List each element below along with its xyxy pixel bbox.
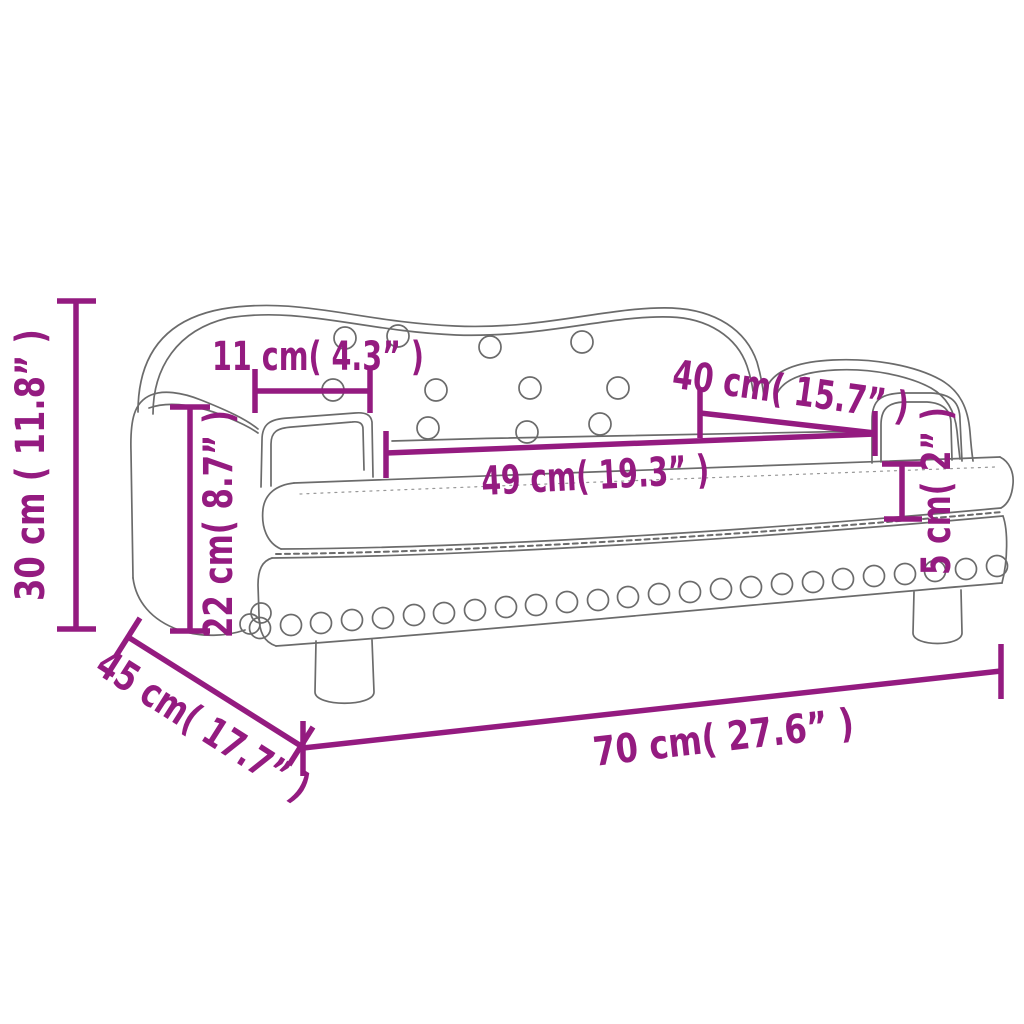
stud	[373, 608, 394, 629]
dimension-label: 49 cm( 19.3” )	[480, 447, 710, 505]
seat-cushion-left-cap	[263, 483, 294, 549]
left-armrest-inner-seam	[271, 422, 364, 486]
tuft-button	[519, 377, 541, 399]
dimension-label: 30 cm ( 11.8” )	[8, 329, 54, 601]
seat-piping-lower	[272, 516, 1003, 558]
tuft-button	[425, 379, 447, 401]
dimension-overall-height: 30 cm ( 11.8” )	[8, 301, 96, 629]
stud	[864, 566, 885, 587]
front-right-leg	[913, 590, 962, 644]
dimension-armrest-height: 22 cm( 8.7” )	[170, 407, 242, 638]
sofa-dimension-diagram: 30 cm ( 11.8” ) 22 cm( 8.7” ) 11 cm( 4.3…	[0, 0, 1024, 1024]
base-bottom-edge	[276, 583, 1002, 646]
dimension-label: 45 cm( 17.7” )	[88, 641, 319, 811]
base-left-edge	[258, 558, 276, 646]
stud	[526, 595, 547, 616]
tuft-button	[589, 413, 611, 435]
stud	[618, 587, 639, 608]
tuft-button	[571, 331, 593, 353]
dimension-label: 40 cm( 15.7” )	[670, 352, 912, 431]
seat-cushion-right-cap	[1000, 457, 1013, 508]
stud	[741, 577, 762, 598]
dimension-seat-width: 49 cm( 19.3” )	[386, 431, 875, 505]
stud	[649, 584, 670, 605]
tuft-button	[516, 421, 538, 443]
stud	[772, 574, 793, 595]
stud	[803, 572, 824, 593]
stud	[833, 569, 854, 590]
stud	[342, 610, 363, 631]
dimension-armrest-top-width: 11 cm( 4.3” )	[212, 334, 424, 413]
dimension-line	[386, 434, 875, 453]
stud	[281, 615, 302, 636]
left-armrest-inner-panel	[261, 413, 373, 487]
stud	[557, 592, 578, 613]
stud	[404, 605, 425, 626]
stud	[311, 613, 332, 634]
tuft-button	[607, 377, 629, 399]
dimension-overall-depth: 45 cm( 17.7” )	[88, 618, 319, 811]
stud	[434, 603, 455, 624]
stud	[465, 600, 486, 621]
tuft-button	[479, 336, 501, 358]
tuft-button	[417, 417, 439, 439]
dimension-overall-width: 70 cm( 27.6” )	[303, 644, 1001, 776]
stud	[496, 597, 517, 618]
diagram-canvas: 30 cm ( 11.8” ) 22 cm( 8.7” ) 11 cm( 4.3…	[0, 0, 1024, 1024]
dimension-cushion-height: 5 cm( 2” )	[882, 407, 960, 575]
stud	[895, 564, 916, 585]
stud	[987, 556, 1008, 577]
stud	[711, 579, 732, 600]
dimension-label: 11 cm( 4.3” )	[212, 334, 424, 380]
dimension-label: 22 cm( 8.7” )	[196, 410, 242, 638]
stud	[588, 590, 609, 611]
dimension-label: 5 cm( 2” )	[914, 407, 960, 575]
front-left-leg	[315, 640, 374, 703]
stud	[680, 582, 701, 603]
